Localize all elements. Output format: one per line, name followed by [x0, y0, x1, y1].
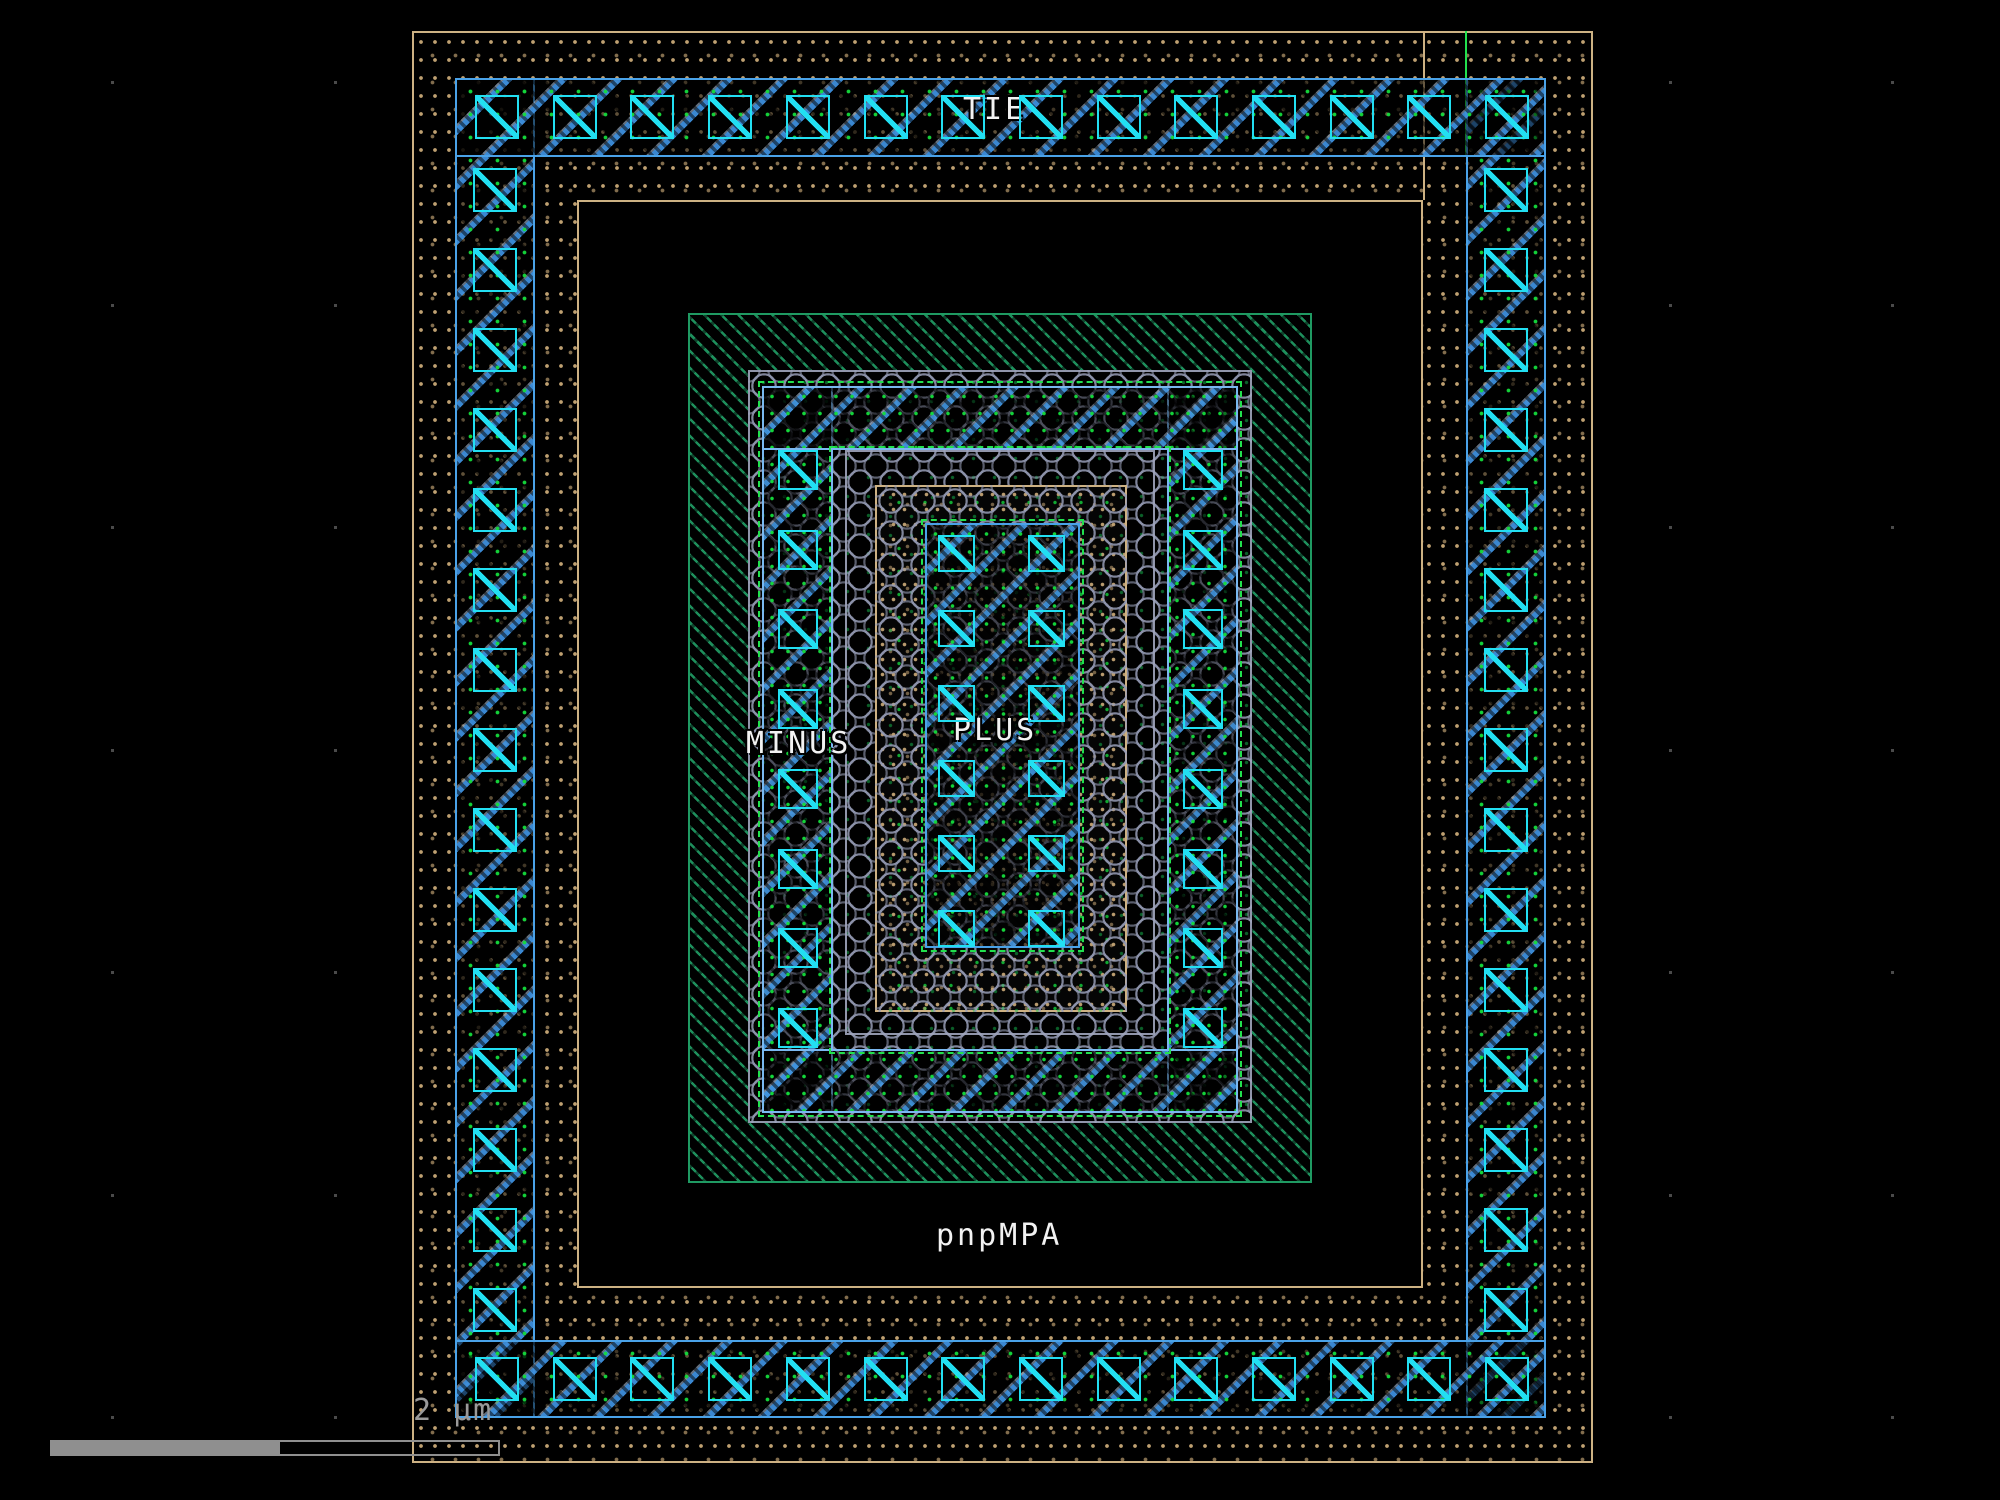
tie-contact[interactable] [1252, 1357, 1296, 1401]
tie-metal-band-bottom[interactable] [455, 1340, 1546, 1418]
minus-contact[interactable] [1183, 769, 1223, 809]
tie-contact[interactable] [1484, 1128, 1528, 1172]
tie-contact[interactable] [708, 1357, 752, 1401]
tie-contact[interactable] [473, 1288, 517, 1332]
tie-contact[interactable] [1484, 808, 1528, 852]
plus-contact[interactable] [938, 835, 975, 872]
net-label-minus[interactable]: MINUS [746, 729, 851, 759]
tie-contact[interactable] [1330, 1357, 1374, 1401]
grid-dot [111, 971, 114, 974]
scale-bar-filled-segment [50, 1440, 278, 1456]
tie-contact[interactable] [1019, 1357, 1063, 1401]
grid-dot [1669, 304, 1672, 307]
tie-contact[interactable] [864, 95, 908, 139]
grid-dot [334, 81, 337, 84]
grid-dot [334, 304, 337, 307]
plus-contact[interactable] [938, 910, 975, 947]
minus-contact[interactable] [1183, 609, 1223, 649]
tie-contact[interactable] [475, 1357, 519, 1401]
tie-contact[interactable] [1484, 408, 1528, 452]
tie-contact[interactable] [1485, 1357, 1529, 1401]
tie-contact[interactable] [1407, 1357, 1451, 1401]
grid-dot [334, 749, 337, 752]
layout-canvas[interactable]: TIE MINUS PLUS pnpMPA 2 µm [0, 0, 2000, 1500]
tie-contact[interactable] [473, 648, 517, 692]
tie-contact[interactable] [1484, 728, 1528, 772]
tie-contact[interactable] [473, 1208, 517, 1252]
grid-dot [334, 1194, 337, 1197]
tie-contact[interactable] [1484, 248, 1528, 292]
grid-dot [1891, 749, 1894, 752]
minus-contact[interactable] [1183, 530, 1223, 570]
tie-contact[interactable] [1252, 95, 1296, 139]
plus-contact[interactable] [938, 535, 975, 572]
grid-dot [1669, 1194, 1672, 1197]
plus-contact[interactable] [1028, 760, 1065, 797]
tie-contact[interactable] [553, 95, 597, 139]
tie-contact[interactable] [473, 888, 517, 932]
plus-contact[interactable] [938, 685, 975, 722]
tie-contact[interactable] [941, 95, 985, 139]
tie-contact[interactable] [708, 95, 752, 139]
grid-dot [111, 749, 114, 752]
grid-dot [1669, 749, 1672, 752]
minus-contact[interactable] [1183, 849, 1223, 889]
grid-dot [111, 1194, 114, 1197]
tie-contact[interactable] [1484, 328, 1528, 372]
grid-dot [1669, 81, 1672, 84]
grid-dot [1891, 1194, 1894, 1197]
tie-contact[interactable] [473, 808, 517, 852]
tie-contact[interactable] [1484, 1208, 1528, 1252]
minus-ring-leg-bottom[interactable] [762, 1049, 1238, 1113]
grid-dot [1891, 526, 1894, 529]
minus-contact[interactable] [778, 609, 818, 649]
tie-contact[interactable] [473, 488, 517, 532]
minus-contact[interactable] [778, 769, 818, 809]
plus-contact[interactable] [1028, 610, 1065, 647]
tie-contact[interactable] [1484, 968, 1528, 1012]
cell-name-label[interactable]: pnpMPA [936, 1221, 1062, 1251]
tie-contact[interactable] [1097, 95, 1141, 139]
plus-contact[interactable] [1028, 910, 1065, 947]
tie-contact[interactable] [1484, 168, 1528, 212]
tie-contact[interactable] [1484, 1288, 1528, 1332]
minus-contact[interactable] [1183, 1008, 1223, 1048]
tie-contact[interactable] [786, 1357, 830, 1401]
tie-contact[interactable] [1484, 488, 1528, 532]
minus-contact[interactable] [778, 849, 818, 889]
grid-dot [334, 1416, 337, 1419]
minus-contact[interactable] [778, 1008, 818, 1048]
grid-dot [1669, 526, 1672, 529]
plus-contact[interactable] [938, 760, 975, 797]
tie-contact[interactable] [473, 328, 517, 372]
grid-dot [1891, 81, 1894, 84]
grid-dot [1891, 971, 1894, 974]
grid-dot [1891, 1416, 1894, 1419]
tie-contact[interactable] [1019, 95, 1063, 139]
tie-contact[interactable] [475, 95, 519, 139]
plus-contact[interactable] [1028, 685, 1065, 722]
grid-dot [111, 526, 114, 529]
tie-contact[interactable] [473, 968, 517, 1012]
tie-contact[interactable] [864, 1357, 908, 1401]
minus-contact[interactable] [778, 928, 818, 968]
plus-contact[interactable] [1028, 535, 1065, 572]
minus-contact[interactable] [1183, 928, 1223, 968]
grid-dot [111, 304, 114, 307]
tie-contact[interactable] [1484, 568, 1528, 612]
tie-contact[interactable] [473, 1048, 517, 1092]
tie-contact[interactable] [1097, 1357, 1141, 1401]
minus-contact[interactable] [778, 689, 818, 729]
grid-dot [1891, 304, 1894, 307]
tie-contact[interactable] [1484, 888, 1528, 932]
tie-contact[interactable] [473, 408, 517, 452]
tie-contact[interactable] [473, 568, 517, 612]
tie-contact[interactable] [630, 1357, 674, 1401]
tie-contact[interactable] [1485, 95, 1529, 139]
minus-contact[interactable] [778, 450, 818, 490]
tie-contact[interactable] [1174, 95, 1218, 139]
minus-contact[interactable] [1183, 689, 1223, 729]
tie-contact[interactable] [1484, 1048, 1528, 1092]
grid-dot [111, 1416, 114, 1419]
plus-contact[interactable] [938, 610, 975, 647]
tie-contact[interactable] [941, 1357, 985, 1401]
minus-contact[interactable] [778, 530, 818, 570]
tie-contact[interactable] [630, 95, 674, 139]
minus-ring-leg-top[interactable] [762, 386, 1238, 450]
tie-contact[interactable] [1330, 95, 1374, 139]
scale-bar-outline-segment [278, 1440, 500, 1456]
grid-dot [111, 81, 114, 84]
minus-contact[interactable] [1183, 450, 1223, 490]
tie-contact[interactable] [473, 168, 517, 212]
plus-contact[interactable] [1028, 835, 1065, 872]
tie-contact[interactable] [473, 728, 517, 772]
tie-contact[interactable] [1407, 95, 1451, 139]
grid-dot [1669, 1416, 1672, 1419]
tie-contact[interactable] [786, 95, 830, 139]
minus-ring-leg-right[interactable] [1167, 386, 1238, 1113]
tie-contact[interactable] [553, 1357, 597, 1401]
grid-dot [1669, 971, 1672, 974]
grid-dot [334, 526, 337, 529]
tie-contact[interactable] [1174, 1357, 1218, 1401]
grid-dot [334, 971, 337, 974]
tie-contact[interactable] [1484, 648, 1528, 692]
tie-contact[interactable] [473, 248, 517, 292]
tie-contact[interactable] [473, 1128, 517, 1172]
